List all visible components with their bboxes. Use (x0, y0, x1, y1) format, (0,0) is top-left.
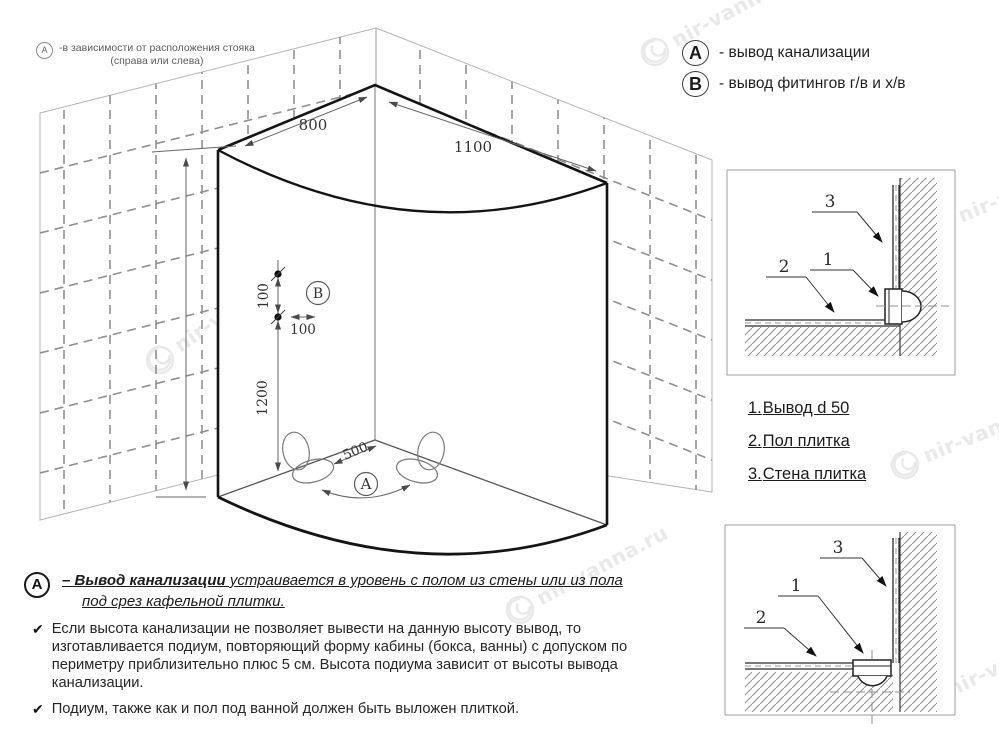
part-num: 2. (748, 432, 762, 450)
footnote-bullet: ✔ Подиум, также как и пол под ванной дол… (32, 700, 714, 718)
part-label: Пол плитка (763, 432, 850, 450)
riser-note: A -в зависимости от расположения стояка … (36, 42, 316, 68)
callout-2: 2 (756, 608, 767, 628)
footnote-bullets: ✔ Если высота канализации не позволяет в… (24, 620, 714, 718)
parts-list-item: 2.Пол плитка (748, 425, 866, 458)
legend-text-a: - вывод канализации (719, 44, 870, 62)
check-icon: ✔ (32, 620, 44, 692)
wall-hatch (900, 532, 937, 712)
callout-1: 1 (791, 576, 802, 596)
dim-800: 800 (299, 116, 328, 134)
footnote-title-rest: устраивается в уровень с полом из стены … (226, 572, 623, 589)
dim-1200: 1200 (255, 380, 271, 416)
installation-scheme-page: nir-vanna.ru (0, 0, 999, 736)
parts-list-item: 1.Вывод d 50 (748, 392, 866, 425)
footnote-marker-a: A (24, 572, 50, 598)
marker-b-label: B (313, 286, 323, 302)
parts-list: 1.Вывод d 50 2.Пол плитка 3.Стена плитка (748, 392, 866, 491)
callout-3: 3 (825, 192, 836, 212)
detail-wall-outlet: 3 1 2 (727, 170, 955, 375)
callout-1: 1 (823, 250, 834, 270)
callout-3: 3 (833, 538, 844, 558)
check-icon: ✔ (32, 700, 44, 718)
footnote-header: A – Вывод канализации устраивается в уро… (24, 570, 714, 612)
legend-item-b: B - вывод фитингов г/в и х/в (682, 71, 906, 97)
footnote-title-bold: – Вывод канализации (62, 572, 226, 589)
watermark (888, 391, 999, 482)
marker-a-mini: A (36, 42, 53, 59)
legend-item-a: A - вывод канализации (682, 40, 906, 66)
callout-2: 2 (779, 257, 790, 277)
footnote-bullet: ✔ Если высота канализации не позволяет в… (32, 620, 714, 692)
footnote-bullet-text: Подиум, также как и пол под ванной долже… (52, 700, 672, 718)
riser-note-text: -в зависимости от расположения стояка (с… (59, 42, 255, 68)
footnote: A – Вывод канализации устраивается в уро… (24, 570, 714, 726)
legend-marker-a: A (682, 40, 709, 66)
dim-100-vertical: 100 (256, 283, 272, 309)
legend: A - вывод канализации B - вывод фитингов… (682, 40, 906, 102)
part-num: 1. (748, 399, 762, 417)
part-label: Стена плитка (763, 465, 866, 483)
part-num: 3. (748, 465, 762, 483)
marker-a-label: A (360, 475, 372, 493)
footnote-title-line2: под срез кафельной плитки. (82, 591, 623, 612)
dim-100-horizontal: 100 (290, 322, 316, 338)
parts-list-item: 3.Стена плитка (748, 458, 866, 491)
floor-hatch (745, 327, 900, 356)
riser-note-line1: -в зависимости от расположения стояка (59, 42, 255, 55)
footnote-title-line1: – Вывод канализации устраивается в урове… (62, 570, 623, 591)
legend-text-b: - вывод фитингов г/в и х/в (719, 75, 906, 93)
riser-note-line2: (справа или слева) (59, 55, 255, 68)
wall-hatch (900, 178, 937, 356)
part-label: Вывод d 50 (763, 399, 850, 417)
detail-floor-outlet: 3 1 2 (725, 525, 955, 726)
footnote-bullet-text: Если высота канализации не позволяет выв… (52, 620, 672, 692)
legend-marker-b: B (682, 71, 709, 97)
footnote-title: – Вывод канализации устраивается в урове… (62, 570, 623, 612)
dim-1100: 1100 (454, 138, 492, 156)
